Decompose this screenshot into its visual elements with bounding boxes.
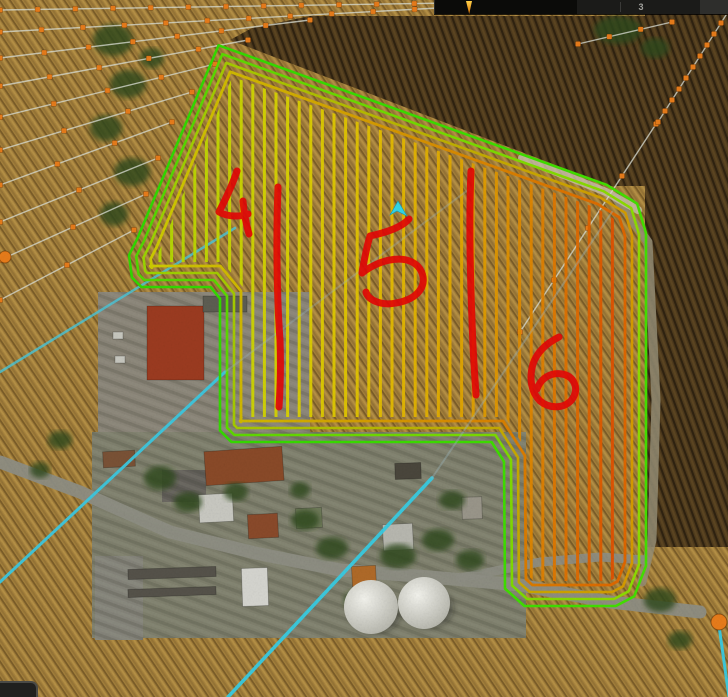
hud-divider (620, 2, 621, 12)
map-viewport: 3 (0, 0, 728, 697)
hud-panel-left (434, 0, 577, 14)
grain-overlay (0, 0, 728, 697)
hud-arrow-icon[interactable] (463, 1, 475, 14)
hud-count-label: 3 (629, 1, 653, 13)
corner-widget[interactable] (0, 681, 38, 697)
hud-panel-right: 3 (577, 0, 700, 14)
satellite-map[interactable] (0, 0, 728, 697)
hud-panel-stub (700, 0, 728, 14)
course-overlay-canvas[interactable] (0, 0, 728, 697)
arrow-shape (466, 1, 472, 14)
hud-bar: 3 (434, 0, 728, 14)
